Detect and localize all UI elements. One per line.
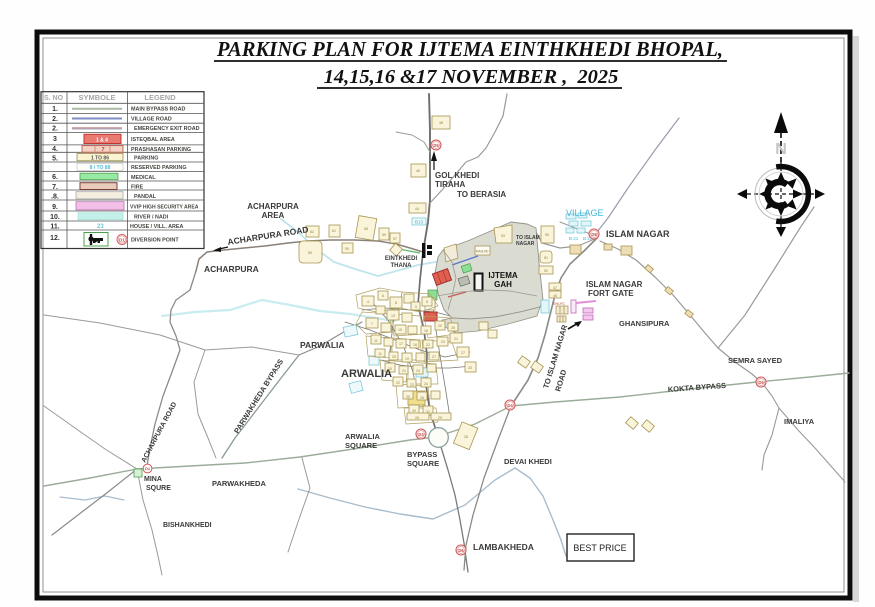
svg-text:23: 23 — [97, 224, 104, 230]
svg-text:2.: 2. — [52, 116, 58, 123]
svg-text:24: 24 — [424, 382, 428, 386]
svg-text:5: 5 — [426, 300, 428, 304]
svg-text:21: 21 — [454, 337, 458, 341]
svg-text:TO BERASIA: TO BERASIA — [457, 190, 506, 199]
svg-text:27: 27 — [461, 351, 465, 355]
svg-text:16: 16 — [424, 329, 428, 333]
svg-text:13: 13 — [391, 314, 395, 318]
svg-text:BYPASS: BYPASS — [407, 450, 437, 459]
svg-text:17: 17 — [399, 342, 403, 346]
svg-text:PARKING PLAN FOR IJTEMA EINTHK: PARKING PLAN FOR IJTEMA EINTHKHEDI BHOPA… — [216, 39, 723, 61]
svg-text:GAH: GAH — [494, 280, 512, 289]
svg-text:D3: D3 — [418, 432, 424, 437]
svg-text:27: 27 — [432, 355, 436, 359]
svg-text:48: 48 — [553, 294, 557, 298]
svg-text:PANDAL: PANDAL — [134, 194, 157, 200]
svg-text:PARWAKHEDA: PARWAKHEDA — [212, 479, 266, 488]
svg-text:23: 23 — [441, 340, 445, 344]
svg-text:21: 21 — [402, 369, 406, 373]
svg-text:47: 47 — [553, 286, 557, 290]
svg-text:FIRE: FIRE — [131, 185, 144, 191]
svg-text:7: 7 — [371, 322, 373, 326]
svg-text:1 & 4: 1 & 4 — [96, 137, 108, 143]
svg-text:30: 30 — [412, 409, 416, 413]
svg-text:2.: 2. — [52, 126, 58, 133]
svg-text:23: 23 — [410, 383, 414, 387]
svg-text:EINTKHEDI: EINTKHEDI — [385, 256, 418, 262]
svg-text:57: 57 — [393, 237, 397, 241]
svg-text:DEVAI KHEDI: DEVAI KHEDI — [504, 457, 552, 466]
svg-text:ARWALIA: ARWALIA — [341, 368, 392, 380]
svg-text:VILLAGE: VILLAGE — [566, 208, 604, 218]
svg-text:22: 22 — [396, 381, 400, 385]
svg-text:7.: 7. — [52, 184, 58, 191]
svg-text:SEMRA SAYED: SEMRA SAYED — [728, 356, 783, 365]
svg-text:22: 22 — [426, 343, 430, 347]
svg-text:AREA: AREA — [262, 211, 285, 220]
svg-text:26: 26 — [420, 396, 424, 400]
svg-text:MASJID: MASJID — [476, 250, 489, 254]
svg-text:ISLAM NAGAR: ISLAM NAGAR — [586, 280, 643, 289]
svg-text:BISHANKHEDI: BISHANKHEDI — [163, 522, 212, 529]
svg-text:GOL KHEDI: GOL KHEDI — [435, 171, 479, 180]
svg-text:S. NO: S. NO — [44, 95, 64, 102]
svg-text:MINA: MINA — [144, 476, 162, 483]
svg-text:25: 25 — [392, 355, 396, 359]
svg-text:3: 3 — [53, 136, 57, 143]
svg-text:DIVERSION POINT: DIVERSION POINT — [131, 238, 179, 244]
svg-text:IMALIYA: IMALIYA — [784, 417, 815, 426]
svg-text:MEDICAL: MEDICAL — [131, 175, 156, 181]
svg-text:60: 60 — [308, 251, 312, 255]
svg-text:50: 50 — [545, 233, 549, 237]
svg-text:D4: D4 — [507, 403, 513, 408]
svg-text:25: 25 — [406, 395, 410, 399]
svg-text:D1: D1 — [119, 238, 125, 243]
svg-text:48: 48 — [439, 121, 443, 125]
svg-text:SYMBOLE: SYMBOLE — [78, 93, 115, 102]
svg-text:B13: B13 — [415, 220, 424, 225]
svg-text:18: 18 — [413, 343, 417, 347]
svg-text:LEGEND: LEGEND — [144, 93, 176, 102]
svg-text:VVIP HIGH SECURITY AREA: VVIP HIGH SECURITY AREA — [130, 205, 199, 211]
svg-text:B 21: B 21 — [569, 236, 579, 241]
svg-text:10.: 10. — [50, 214, 60, 221]
svg-text:SQUARE: SQUARE — [407, 459, 439, 468]
svg-text:26: 26 — [464, 435, 468, 439]
svg-text:51: 51 — [544, 256, 548, 260]
svg-text:D5: D5 — [433, 143, 439, 148]
svg-text:RESERVED PARKING: RESERVED PARKING — [131, 165, 187, 171]
svg-text:61: 61 — [332, 229, 336, 233]
svg-text:D8: D8 — [591, 232, 597, 237]
svg-text:.8.: .8. — [51, 194, 59, 201]
svg-text:9: 9 — [415, 305, 417, 309]
svg-text:TIRAHA: TIRAHA — [435, 180, 465, 189]
svg-text:FORT GATE: FORT GATE — [588, 289, 634, 298]
svg-text:ACHARPURA: ACHARPURA — [247, 202, 299, 211]
svg-text:PRASHASAN PARKING: PRASHASAN PARKING — [131, 147, 191, 153]
svg-text:24: 24 — [416, 369, 420, 373]
svg-text:29: 29 — [438, 416, 442, 420]
svg-text:9.: 9. — [52, 204, 58, 211]
svg-text:RIVER / NADI: RIVER / NADI — [134, 215, 169, 221]
svg-text:7: 7 — [101, 147, 104, 153]
svg-text:15: 15 — [398, 328, 402, 332]
svg-text:62: 62 — [310, 230, 314, 234]
svg-text:8 / TO 88: 8 / TO 88 — [90, 165, 111, 171]
svg-text:6.: 6. — [52, 174, 58, 181]
svg-text:D1: D1 — [145, 466, 151, 471]
svg-text:11: 11 — [374, 339, 378, 343]
svg-text:GHANSIPURA: GHANSIPURA — [619, 319, 670, 328]
svg-text:NAGAR: NAGAR — [516, 241, 535, 247]
svg-text:VILLAGE ROAD: VILLAGE ROAD — [131, 116, 172, 122]
svg-text:59: 59 — [382, 233, 386, 237]
svg-text:PARKING: PARKING — [134, 156, 158, 162]
svg-text:44: 44 — [415, 207, 419, 211]
svg-text:SQURE: SQURE — [146, 485, 171, 492]
svg-text:MAIN BYPASS ROAD: MAIN BYPASS ROAD — [131, 107, 186, 113]
svg-text:4.: 4. — [52, 146, 58, 153]
svg-text:SHILPG: SHILPG — [553, 302, 565, 306]
svg-text:11.: 11. — [50, 224, 59, 231]
svg-text:11: 11 — [378, 352, 382, 356]
svg-text:52: 52 — [544, 269, 548, 273]
svg-text:EMERGENCY EXIT ROAD: EMERGENCY EXIT ROAD — [134, 126, 200, 132]
svg-text:19: 19 — [405, 357, 409, 361]
svg-text:D6: D6 — [458, 548, 464, 553]
svg-text:THANA: THANA — [391, 263, 413, 269]
svg-text:ISTEQBAL AREA: ISTEQBAL AREA — [131, 137, 175, 143]
svg-text:58: 58 — [364, 227, 368, 231]
svg-text:LAMBAKHEDA: LAMBAKHEDA — [473, 542, 534, 552]
svg-text:PARWALIA: PARWALIA — [300, 340, 345, 350]
svg-text:ACHARPURA: ACHARPURA — [204, 264, 259, 274]
svg-text:50: 50 — [345, 247, 349, 251]
svg-text:28: 28 — [415, 416, 419, 420]
svg-text:12.: 12. — [50, 235, 60, 242]
svg-text:5.: 5. — [52, 156, 58, 163]
svg-text:46: 46 — [416, 169, 420, 173]
svg-text:BEST PRICE: BEST PRICE — [573, 543, 626, 553]
svg-text:SQUARE: SQUARE — [345, 441, 377, 450]
svg-text:26: 26 — [451, 326, 455, 330]
svg-text:53: 53 — [501, 234, 505, 238]
svg-text:1.: 1. — [52, 106, 58, 113]
svg-text:ARWALIA: ARWALIA — [345, 432, 380, 441]
svg-text:6: 6 — [382, 294, 384, 298]
svg-text:20: 20 — [438, 324, 442, 328]
svg-text:IJTEMA: IJTEMA — [488, 271, 518, 280]
svg-text:4: 4 — [367, 300, 369, 304]
svg-text:HOUSE / VILL. AREA: HOUSE / VILL. AREA — [130, 224, 184, 230]
svg-text:31: 31 — [426, 410, 430, 414]
svg-text:ISLAM NAGAR: ISLAM NAGAR — [606, 229, 670, 239]
svg-text:14,15,16 &17 NOVEMBER , 2025: 14,15,16 &17 NOVEMBER , 2025 — [324, 66, 619, 88]
svg-text:1 TO 86: 1 TO 86 — [91, 156, 109, 162]
svg-text:N: N — [775, 141, 787, 158]
svg-text:33: 33 — [468, 366, 472, 370]
svg-text:8: 8 — [395, 301, 397, 305]
svg-text:D9: D9 — [758, 380, 764, 385]
